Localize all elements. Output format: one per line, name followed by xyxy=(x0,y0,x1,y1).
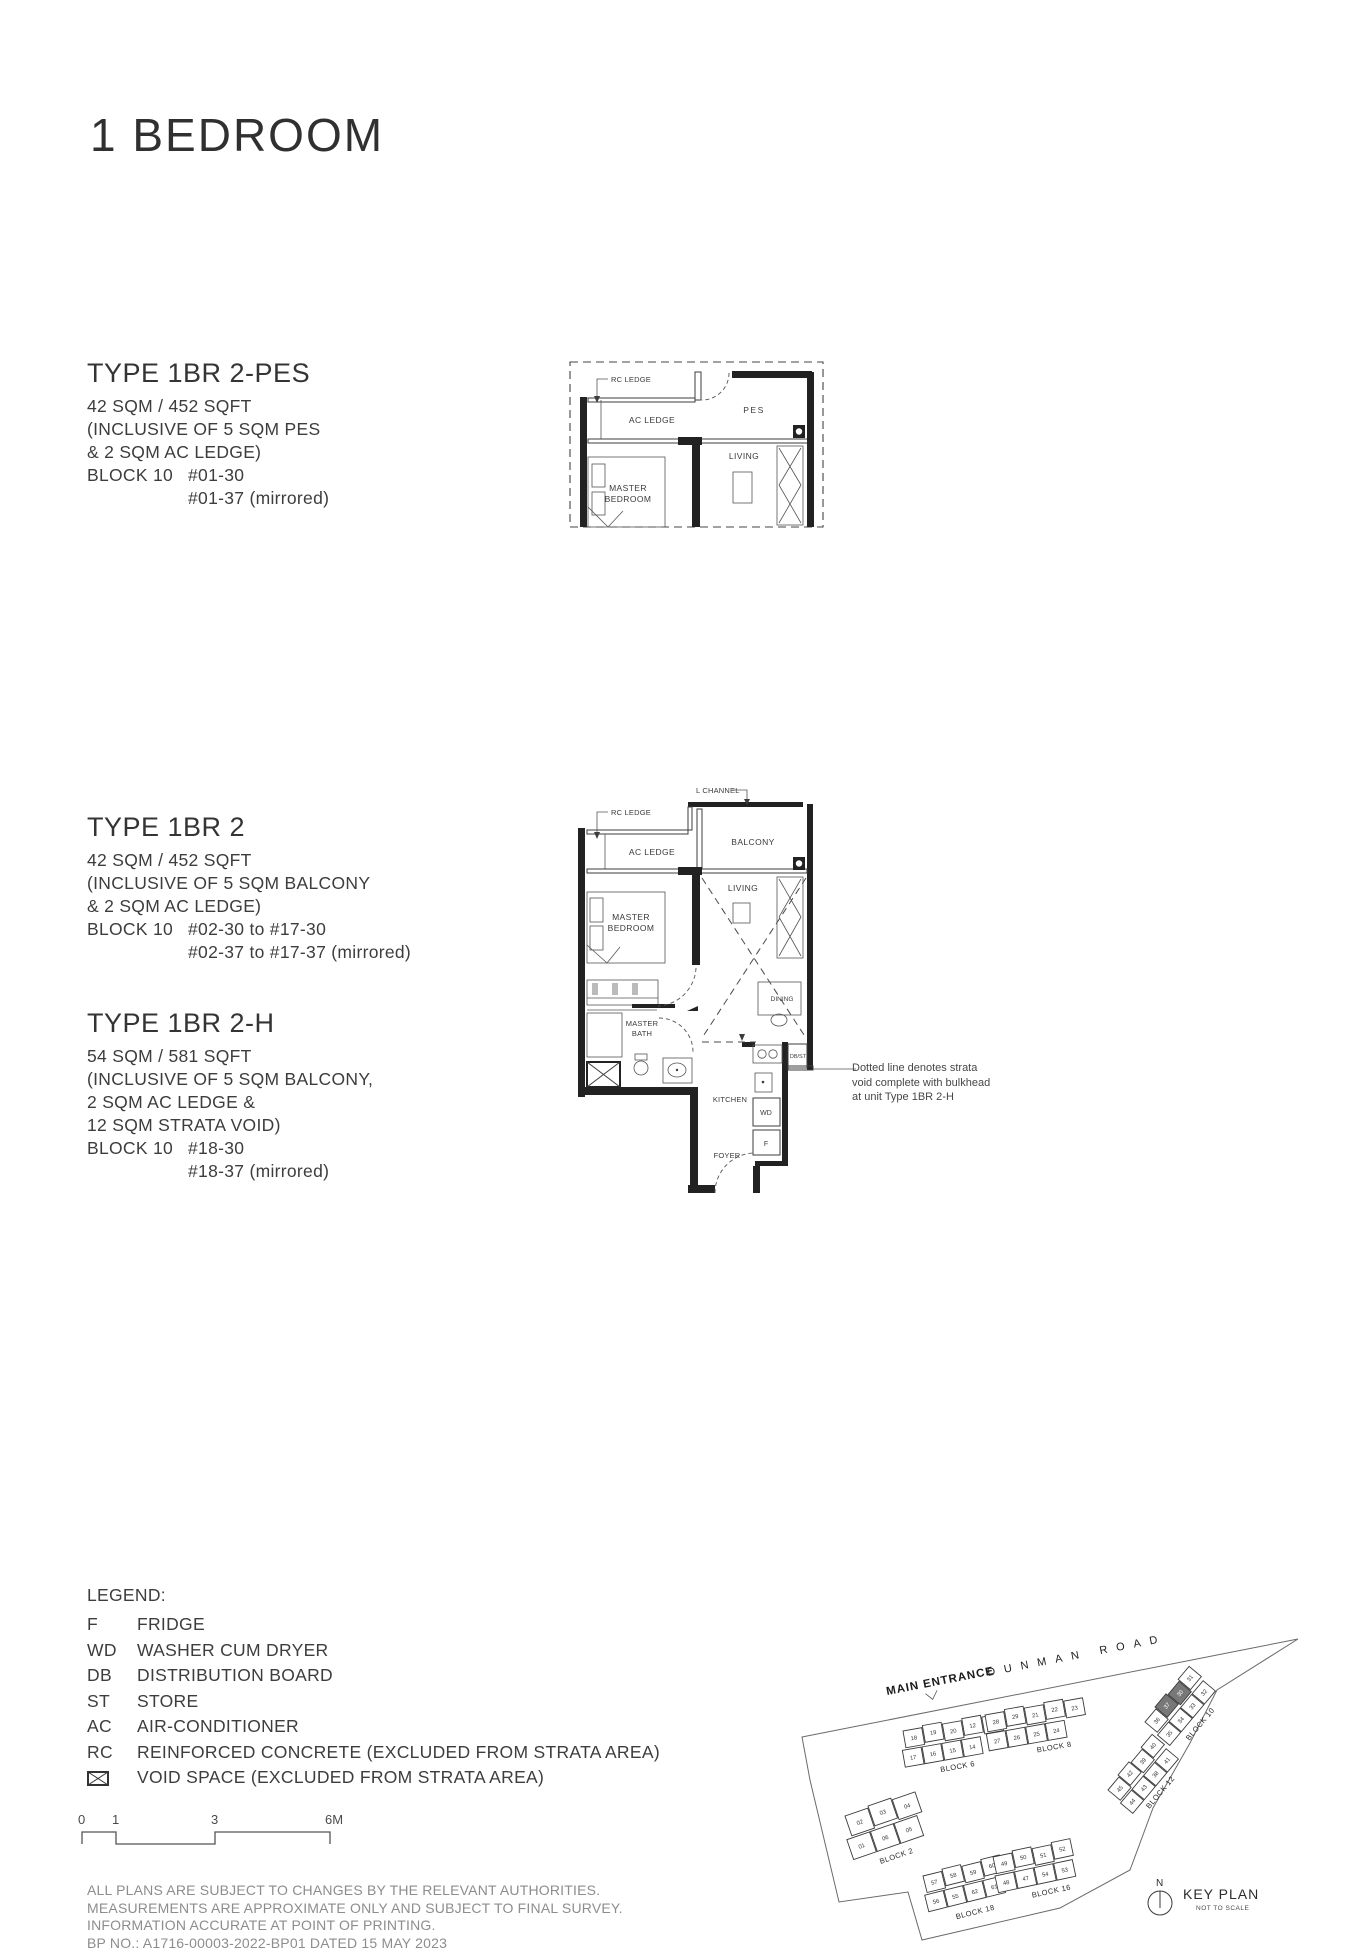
pillow xyxy=(592,464,605,487)
keyplan-block-block-12: 4542394044433841BLOCK 12 xyxy=(1105,1734,1189,1821)
keyplan-subtitle: NOT TO SCALE xyxy=(1196,1905,1249,1912)
label-fridge: F xyxy=(764,1141,768,1148)
wardrobe xyxy=(587,980,658,1005)
entrance-arrow xyxy=(925,1690,938,1700)
legend-row: RC REINFORCED CONCRETE (EXCLUDED FROM ST… xyxy=(87,1742,660,1768)
label-foyer: FOYER xyxy=(714,1151,741,1160)
unit-area: 42 SQM / 452 SQFT xyxy=(87,849,507,872)
label-wd: WD xyxy=(760,1110,772,1117)
keyplan-unit-number: 29 xyxy=(1012,1714,1019,1721)
stove xyxy=(753,1045,782,1063)
legend-row: AC AIR-CONDITIONER xyxy=(87,1716,660,1742)
floorplan-type-1br-2-pes: RC LEDGE AC LEDGE PES LIVING MASTER BEDR… xyxy=(563,355,838,535)
keyplan-unit-number: 16 xyxy=(929,1751,936,1758)
label-living: LIVING xyxy=(729,451,759,461)
label-ac-ledge: AC LEDGE xyxy=(629,415,675,425)
unit-stack: #01-30 xyxy=(188,464,244,487)
label-kitchen: KITCHEN xyxy=(713,1095,747,1104)
unit-block-label: BLOCK 10 xyxy=(87,464,188,487)
unit-heading: TYPE 1BR 2-PES xyxy=(87,358,507,389)
unit-area: 54 SQM / 581 SQFT xyxy=(87,1045,507,1068)
unit-inclusive-line: (INCLUSIVE OF 5 SQM BALCONY, xyxy=(87,1068,507,1091)
keyplan-unit-number: 12 xyxy=(969,1723,976,1730)
unit-block-label: BLOCK 10 xyxy=(87,918,188,941)
pes-door-arc xyxy=(702,373,729,400)
keyplan-block-label: BLOCK 18 xyxy=(955,1903,996,1921)
unit-block-row: #02-37 to #17-37 (mirrored) xyxy=(87,941,507,964)
svg-text:MAIN ENTRANCE: MAIN ENTRANCE xyxy=(885,1665,995,1698)
unit-stack: #02-37 to #17-37 (mirrored) xyxy=(188,941,411,964)
void-space-box xyxy=(587,1062,620,1087)
svg-text:BATH: BATH xyxy=(632,1029,652,1038)
bath-door-arc xyxy=(659,1018,693,1052)
unit-inclusive-line: (INCLUSIVE OF 5 SQM BALCONY xyxy=(87,872,507,895)
unit-block-row: BLOCK 10 #18-30 xyxy=(87,1137,507,1160)
pillow xyxy=(590,898,603,922)
legend-row: WD WASHER CUM DRYER xyxy=(87,1640,660,1666)
label-master-bedroom: MASTER xyxy=(609,483,647,493)
unit-type-1br-2-pes: TYPE 1BR 2-PES 42 SQM / 452 SQFT (INCLUS… xyxy=(87,358,507,510)
legend-row: DB DISTRIBUTION BOARD xyxy=(87,1665,660,1691)
pillow xyxy=(590,926,603,950)
strata-void-annotation: Dotted line denotes strata void complete… xyxy=(852,1061,1022,1105)
unit-inclusive-line: (INCLUSIVE OF 5 SQM PES xyxy=(87,418,507,441)
unit-stack: #01-37 (mirrored) xyxy=(188,487,329,510)
svg-text:BEDROOM: BEDROOM xyxy=(605,494,652,504)
keyplan-block-label: BLOCK 16 xyxy=(1031,1883,1072,1900)
unit-inclusive-line: & 2 SQM AC LEDGE) xyxy=(87,441,507,464)
shower xyxy=(587,1013,622,1057)
unit-area: 42 SQM / 452 SQFT xyxy=(87,395,507,418)
scale-tick: 6M xyxy=(325,1812,343,1827)
unit-stack: #18-37 (mirrored) xyxy=(188,1160,329,1183)
bedroom-door-leaf xyxy=(687,1006,698,1011)
label-rc-ledge: RC LEDGE xyxy=(611,375,651,384)
label-ac-ledge: AC LEDGE xyxy=(629,847,675,857)
scale-tick: 3 xyxy=(211,1812,218,1827)
unit-stack: #18-30 xyxy=(188,1137,244,1160)
scale-tick: 1 xyxy=(112,1812,119,1827)
keyplan-unit-number: 20 xyxy=(950,1728,957,1735)
keyplan-unit-number: 21 xyxy=(1032,1712,1039,1719)
window-curtain xyxy=(777,446,803,525)
unit-inclusive-line: & 2 SQM AC LEDGE) xyxy=(87,895,507,918)
bedroom-door-arc xyxy=(658,968,696,1006)
road-label: DUNMAN ROAD xyxy=(986,1632,1167,1679)
label-living: LIVING xyxy=(728,883,758,893)
unit-block-row: BLOCK 10 #02-30 to #17-30 xyxy=(87,918,507,941)
void-space-icon xyxy=(87,1771,109,1786)
disclaimer: ALL PLANS ARE SUBJECT TO CHANGES BY THE … xyxy=(87,1882,623,1952)
plan2-strata-void-dashes xyxy=(702,878,806,1042)
legend-row: ST STORE xyxy=(87,1691,660,1717)
unit-block-label: BLOCK 10 xyxy=(87,1137,188,1160)
unit-stack: #02-30 to #17-30 xyxy=(188,918,326,941)
toilet xyxy=(635,1054,647,1060)
scale-tick: 0 xyxy=(78,1812,85,1827)
unit-block-row: #18-37 (mirrored) xyxy=(87,1160,507,1183)
unit-block-row: #01-37 (mirrored) xyxy=(87,487,507,510)
coffee-table xyxy=(733,903,750,923)
unit-heading: TYPE 1BR 2 xyxy=(87,812,507,843)
label-dbst: DB/ST xyxy=(790,1054,807,1060)
pillow xyxy=(592,492,605,515)
legend-row-void: VOID SPACE (EXCLUDED FROM STRATA AREA) xyxy=(87,1767,660,1793)
keyplan-unit-number: 28 xyxy=(992,1719,999,1726)
unit-type-1br-2: TYPE 1BR 2 42 SQM / 452 SQFT (INCLUSIVE … xyxy=(87,812,507,964)
label-master-bedroom: MASTER xyxy=(612,912,650,922)
label-dining: DINING xyxy=(771,996,794,1003)
floorplan-type-1br-2: L CHANNEL RC LEDGE AC LEDGE BALCONY LIVI… xyxy=(560,780,860,1205)
keyplan-block-block-2: 020304010605BLOCK 2 xyxy=(839,1790,935,1874)
keyplan: MAIN ENTRANCE DUNMAN ROAD N KEY PLAN NOT… xyxy=(640,1600,1350,1948)
vanity-counter xyxy=(632,1004,675,1008)
legend-title: LEGEND: xyxy=(87,1585,660,1606)
keyplan-unit-number: 27 xyxy=(994,1738,1001,1745)
scale-bar: 0 1 3 6M xyxy=(80,1806,350,1851)
unit-inclusive-line: 2 SQM AC LEDGE & xyxy=(87,1091,507,1114)
keyplan-block-block-8: 282921222327262524BLOCK 8 xyxy=(983,1696,1091,1763)
plan1-leader-rc-ledge xyxy=(594,379,608,403)
keyplan-unit-number: 18 xyxy=(910,1735,917,1742)
coffee-table xyxy=(733,472,752,503)
unit-block-row: BLOCK 10 #01-30 xyxy=(87,464,507,487)
north-compass: N xyxy=(1148,1878,1172,1915)
plan2-leader-rc-ledge xyxy=(594,812,608,839)
north-label: N xyxy=(1156,1878,1163,1889)
keyplan-unit-number: 25 xyxy=(1033,1732,1040,1739)
label-balcony: BALCONY xyxy=(731,837,774,847)
label-rc-ledge: RC LEDGE xyxy=(611,808,651,817)
keyplan-title: KEY PLAN xyxy=(1183,1886,1259,1902)
label-l-channel: L CHANNEL xyxy=(696,786,740,795)
legend: LEGEND: F FRIDGE WD WASHER CUM DRYER DB … xyxy=(87,1585,660,1793)
svg-text:BEDROOM: BEDROOM xyxy=(608,923,655,933)
keyplan-block-label: BLOCK 6 xyxy=(939,1759,975,1774)
keyplan-unit-number: 17 xyxy=(910,1755,917,1762)
keyplan-unit-number: 15 xyxy=(949,1748,956,1755)
keyplan-unit-number: 26 xyxy=(1013,1735,1020,1742)
label-pes: PES xyxy=(743,405,765,415)
unit-type-1br-2-h: TYPE 1BR 2-H 54 SQM / 581 SQFT (INCLUSIV… xyxy=(87,1008,507,1183)
label-master-bath: MASTER xyxy=(626,1019,659,1028)
unit-inclusive-line: 12 SQM STRATA VOID) xyxy=(87,1114,507,1137)
keyplan-unit-number: 19 xyxy=(930,1730,937,1737)
keyplan-unit-number: 22 xyxy=(1051,1707,1058,1714)
legend-row: F FRIDGE xyxy=(87,1614,660,1640)
unit-heading: TYPE 1BR 2-H xyxy=(87,1008,507,1039)
page-title: 1 BEDROOM xyxy=(90,108,384,162)
keyplan-block-block-16: 4950515248475453BLOCK 16 xyxy=(991,1839,1081,1907)
dining-chair xyxy=(771,1014,787,1026)
keyplan-unit-number: 23 xyxy=(1071,1705,1078,1712)
